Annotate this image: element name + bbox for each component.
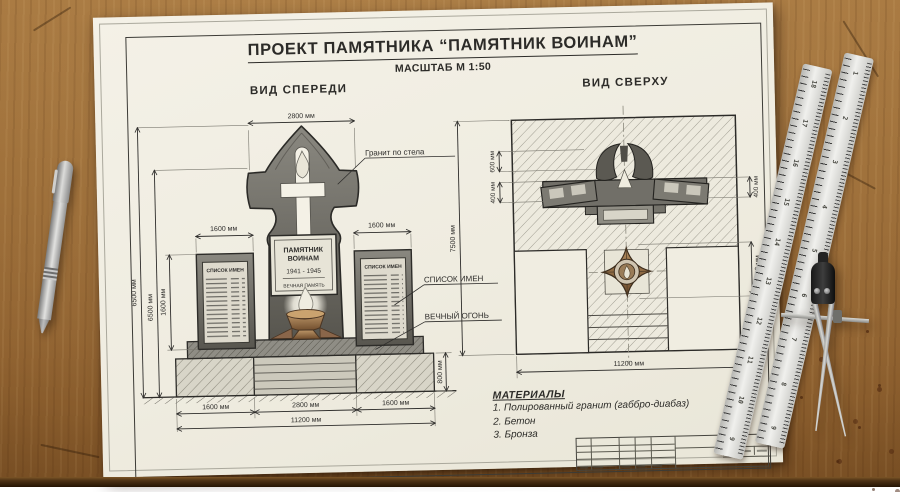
plaque-line2: ВОИНАМ [288, 255, 320, 263]
dim-bottom-center: 2800 мм [292, 402, 319, 410]
names-rows-right [364, 272, 404, 335]
compass-divider [775, 252, 885, 442]
name-slab-left: СПИСОК ИМЕН [196, 253, 255, 349]
compass-adjust-bar [781, 313, 869, 323]
dim-total-width: 11200 мм [291, 417, 322, 425]
dim-bottom-right: 1600 мм [382, 400, 409, 408]
plaque-line1: ПАМЯТНИК [283, 247, 323, 255]
pen [32, 159, 76, 336]
compass-head [811, 262, 835, 304]
plaque-years: 1941 - 1945 [286, 268, 321, 276]
blueprint-paper: ПРОЕКТ ПАМЯТНИКА “ПАМЯТНИК ВОИНАМ” МАСШТ… [93, 2, 783, 477]
dim-slab-height: 1600 мм [160, 288, 168, 315]
dim-slab-width-left: 1600 мм [210, 226, 237, 234]
dim-slab-width-right: 1600 мм [368, 222, 395, 230]
memorial-plaque: ПАМЯТНИК ВОИНАМ 1941 - 1945 ВЕЧНАЯ ПАМЯТ… [270, 234, 337, 295]
desk-edge [0, 477, 900, 487]
desk-scratch [40, 444, 99, 458]
slab-header-right: СПИСОК ИМЕН [364, 264, 402, 271]
top-view-drawing: 7500 мм 600 мм 400 мм 400 мм 1500 мм 112… [443, 88, 779, 385]
slab-header-left: СПИСОК ИМЕН [206, 267, 244, 274]
plan-eternal-flame [602, 247, 651, 296]
dim-slab-depth: 400 мм [490, 181, 498, 203]
dim-height-total: 6500 мм [131, 279, 139, 306]
compass-slider [833, 310, 842, 323]
dim-plan-total-width: 11200 мм [614, 360, 645, 368]
dim-bottom-left: 1600 мм [202, 404, 229, 412]
dim-side-total: 7500 мм [450, 225, 458, 252]
pen-tip [35, 318, 51, 334]
desk-scene: ПРОЕКТ ПАМЯТНИКА “ПАМЯТНИК ВОИНАМ” МАСШТ… [0, 0, 900, 487]
pen-body [37, 201, 67, 320]
dim-height-inner: 6500 мм [147, 294, 155, 321]
dim-right-offset: 400 мм [753, 175, 761, 197]
dim-base-height: 800 мм [437, 360, 445, 384]
annotation-granite: Гранит по стела [365, 147, 425, 157]
compass-screw [814, 288, 820, 294]
materials-list: МАТЕРИАЛЫ 1. Полированный гранит (габбро… [492, 384, 743, 442]
pen-rings [43, 267, 59, 281]
names-rows-left [206, 275, 246, 338]
dim-flame-depth: 600 мм [489, 150, 497, 172]
compass-screw [824, 288, 830, 294]
desk-scratch [33, 6, 71, 31]
dim-top-width: 2800 мм [288, 113, 315, 121]
